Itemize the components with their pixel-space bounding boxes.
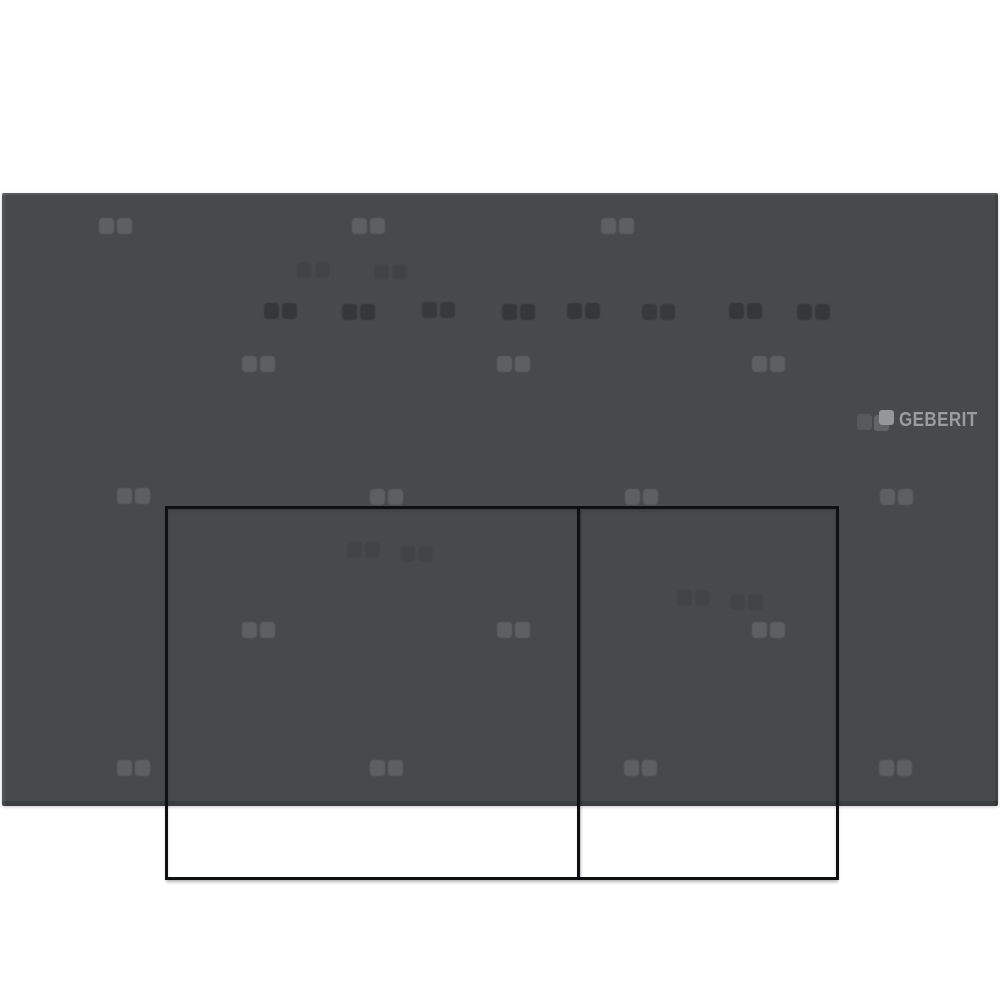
- pattern-square: [520, 304, 535, 320]
- geberit-logo: GEBERIT: [855, 408, 989, 434]
- pattern-square: [601, 218, 616, 234]
- product-photo: GEBERIT: [0, 0, 1000, 1000]
- large-flush-button: [168, 509, 577, 877]
- pattern-pair: [642, 304, 675, 320]
- pattern-square: [752, 356, 767, 372]
- pattern-square: [370, 218, 385, 234]
- pattern-square: [879, 760, 894, 776]
- pattern-square: [370, 489, 385, 505]
- pattern-square: [497, 356, 512, 372]
- pattern-square: [585, 303, 600, 319]
- flush-buttons-outline: [165, 506, 839, 880]
- pattern-square: [898, 489, 913, 505]
- pattern-square: [897, 760, 912, 776]
- pattern-pair: [242, 356, 275, 372]
- pattern-pair: [374, 264, 407, 280]
- pattern-square: [643, 489, 658, 505]
- pattern-square: [797, 304, 812, 320]
- pattern-square: [625, 489, 640, 505]
- pattern-square: [315, 262, 330, 278]
- pattern-pair: [880, 489, 913, 505]
- pattern-square: [360, 304, 375, 320]
- pattern-square: [729, 303, 744, 319]
- pattern-square: [264, 303, 279, 319]
- pattern-pair: [601, 218, 634, 234]
- pattern-square: [374, 264, 389, 280]
- pattern-square: [117, 218, 132, 234]
- pattern-square: [260, 356, 275, 372]
- pattern-square: [880, 489, 895, 505]
- pattern-square: [135, 488, 150, 504]
- pattern-square: [502, 304, 517, 320]
- pattern-pair: [264, 303, 297, 319]
- pattern-pair: [370, 489, 403, 505]
- pattern-pair: [797, 304, 830, 320]
- pattern-square: [619, 218, 634, 234]
- pattern-square: [99, 218, 114, 234]
- pattern-pair: [497, 356, 530, 372]
- pattern-square: [515, 356, 530, 372]
- pattern-pair: [117, 760, 150, 776]
- geberit-wordmark: GEBERIT: [899, 410, 978, 430]
- small-flush-button: [580, 509, 836, 877]
- pattern-square: [660, 304, 675, 320]
- pattern-square: [770, 356, 785, 372]
- pattern-square: [342, 304, 357, 320]
- flush-plate: GEBERIT: [2, 193, 998, 806]
- pattern-square: [422, 302, 437, 318]
- pattern-square: [440, 302, 455, 318]
- pattern-pair: [422, 302, 455, 318]
- pattern-pair: [729, 303, 762, 319]
- pattern-pair: [352, 218, 385, 234]
- pattern-square: [242, 356, 257, 372]
- pattern-pair: [342, 304, 375, 320]
- pattern-pair: [502, 304, 535, 320]
- pattern-square: [352, 218, 367, 234]
- pattern-square: [642, 304, 657, 320]
- geberit-logo-square-icon: [879, 410, 894, 425]
- pattern-pair: [99, 218, 132, 234]
- pattern-pair: [879, 760, 912, 776]
- pattern-square: [282, 303, 297, 319]
- pattern-pair: [567, 303, 600, 319]
- pattern-square: [815, 304, 830, 320]
- pattern-pair: [752, 356, 785, 372]
- pattern-square: [297, 262, 312, 278]
- pattern-square: [392, 264, 407, 280]
- pattern-pair: [625, 489, 658, 505]
- pattern-square: [747, 303, 762, 319]
- pattern-pair: [297, 262, 330, 278]
- pattern-square-icon: [857, 414, 872, 430]
- pattern-square: [117, 488, 132, 504]
- pattern-square: [117, 760, 132, 776]
- pattern-square: [135, 760, 150, 776]
- pattern-square: [388, 489, 403, 505]
- pattern-pair: [117, 488, 150, 504]
- pattern-square: [567, 303, 582, 319]
